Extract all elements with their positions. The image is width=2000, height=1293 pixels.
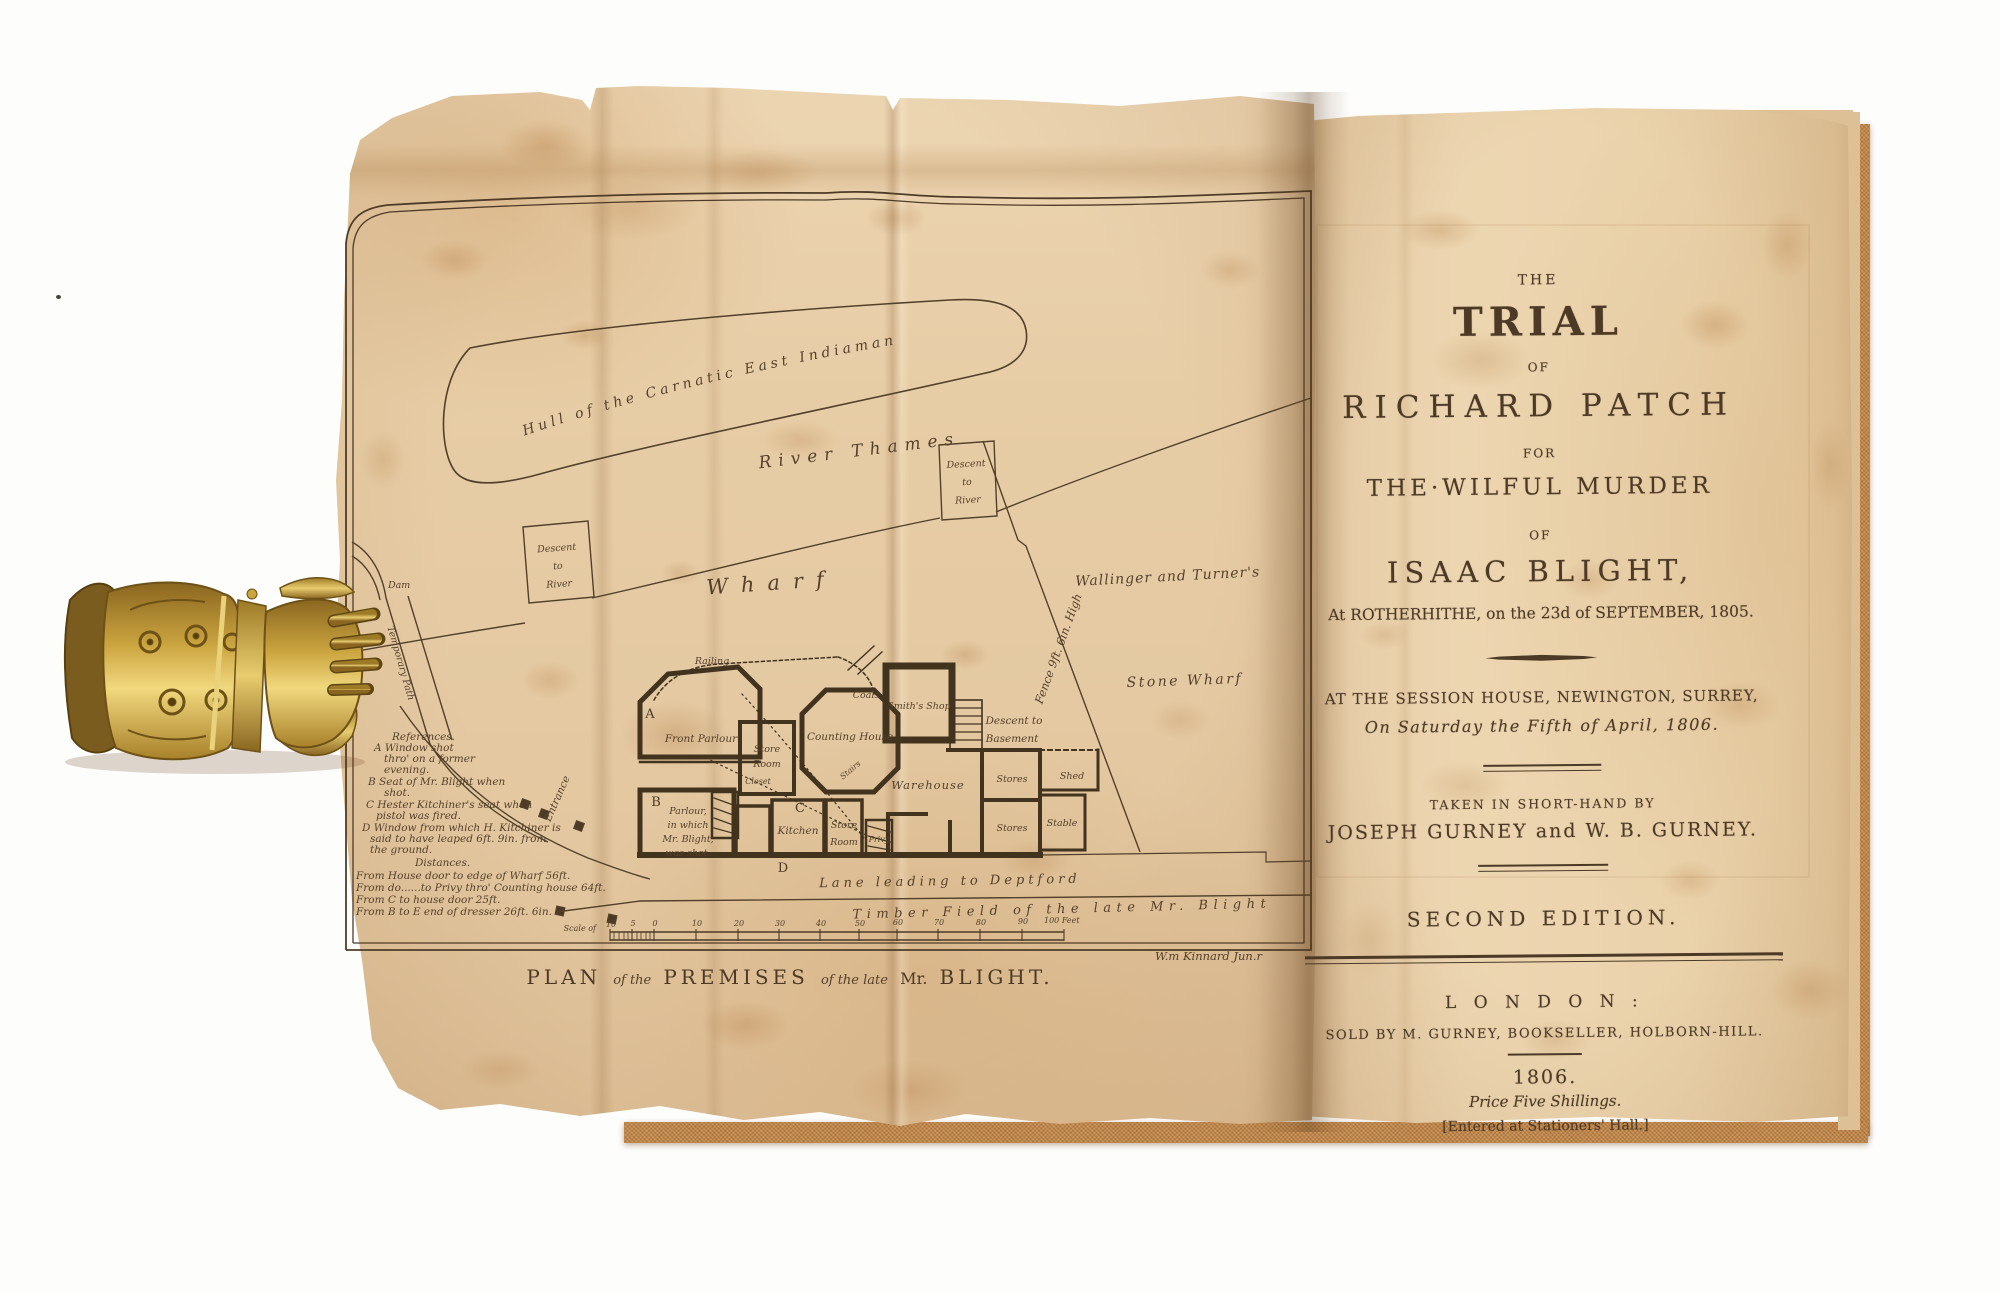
scale-bar bbox=[610, 929, 1064, 941]
wallinger-label: Wallinger and Turner's bbox=[1075, 564, 1261, 590]
plan-legend: References. A Window shot thro' on a for… bbox=[355, 731, 606, 918]
caption-part: Mr. bbox=[900, 969, 927, 988]
title-the: THE bbox=[1293, 270, 1783, 290]
title-publisher: SOLD BY M. GURNEY, BOOKSELLER, HOLBORN-H… bbox=[1300, 1024, 1790, 1043]
legend-line: Distances. bbox=[414, 857, 470, 869]
scale-number: 80 bbox=[976, 918, 986, 927]
counting-house-label: Counting House bbox=[807, 731, 893, 743]
scale-labels: Scale of 10 5 0 10 20 30 40 50 60 70 80 … bbox=[564, 916, 1081, 933]
coals-label: Coals bbox=[853, 690, 880, 701]
scale-number: 20 bbox=[733, 919, 744, 928]
river-label: River Thames bbox=[757, 429, 962, 474]
title-trial-date: On Saturday the Fifth of April, 1806. bbox=[1297, 714, 1787, 737]
store-room-lower-2: Room bbox=[829, 837, 858, 848]
front-parlour-label: Front Parlour bbox=[664, 733, 738, 745]
shed-label: Shed bbox=[1060, 771, 1084, 782]
hull-label-text: Hull of the Carnatic East Indiaman bbox=[520, 332, 899, 439]
marker-d: D bbox=[778, 861, 788, 876]
smiths-shop-label: Smith's Shop bbox=[887, 701, 950, 712]
title-defendant: RICHARD PATCH bbox=[1294, 386, 1784, 426]
stores-upper-label: Stores bbox=[996, 774, 1027, 785]
descent-basement-2: Basement bbox=[985, 733, 1040, 745]
marker-b: B bbox=[651, 795, 661, 810]
title-of-1: OF bbox=[1294, 358, 1784, 376]
legend-line: pistol was fired. bbox=[376, 810, 461, 822]
scale-number: 30 bbox=[775, 919, 785, 928]
brass-hand-clasp[interactable] bbox=[65, 578, 379, 774]
parlour-shot-1: Parlour, bbox=[668, 806, 707, 817]
book-photograph: Hull of the Carnatic East Indiaman River… bbox=[0, 0, 2000, 1293]
descent2-line1: Descent bbox=[945, 458, 986, 471]
title-page-text: THE TRIAL OF RICHARD PATCH FOR THE·WILFU… bbox=[1292, 102, 1861, 1133]
descent1-line3: River bbox=[545, 578, 574, 591]
stairs-label: Stairs bbox=[838, 759, 862, 781]
entrance-label: Entrance bbox=[541, 774, 572, 824]
descent2-line3: River bbox=[954, 494, 983, 506]
store-room-upper-1: Store bbox=[754, 744, 781, 755]
legend-line: From House door to edge of Wharf 56ft. bbox=[355, 870, 570, 882]
privy-label: Privy bbox=[868, 835, 890, 844]
marker-c: C bbox=[795, 801, 805, 816]
double-rule-1 bbox=[1297, 762, 1787, 773]
hull-label: Hull of the Carnatic East Indiaman bbox=[520, 332, 899, 439]
scale-number: 50 bbox=[855, 919, 865, 928]
title-for: FOR bbox=[1295, 444, 1785, 462]
title-year: 1806. bbox=[1300, 1064, 1790, 1090]
kitchen-label: Kitchen bbox=[776, 825, 818, 837]
clasp-wristband bbox=[232, 600, 266, 752]
scale-number: 10 bbox=[606, 920, 616, 929]
caption-part: BLIGHT. bbox=[940, 965, 1054, 989]
legend-line: From do......to Privy thro' Counting hou… bbox=[355, 882, 606, 894]
title-of-2: OF bbox=[1295, 526, 1785, 544]
scale-number: 90 bbox=[1018, 917, 1028, 926]
scale-number: 10 bbox=[692, 919, 702, 928]
caption-part: PLAN bbox=[526, 965, 601, 989]
legend-line: From B to E end of dresser 26ft. 6in. bbox=[355, 906, 552, 918]
descent1-line1: Descent bbox=[536, 542, 577, 556]
legend-line: the ground. bbox=[370, 844, 432, 856]
descent2-line2: to bbox=[962, 477, 972, 488]
plan-caption: PLAN of the PREMISES of the late Mr. BLI… bbox=[526, 965, 1053, 989]
title-price: Price Five Shillings. bbox=[1300, 1090, 1790, 1112]
parlour-shot-3: Mr. Blight, bbox=[661, 834, 713, 845]
store-room-lower-1: Store bbox=[831, 820, 858, 831]
title-edition: SECOND EDITION. bbox=[1299, 904, 1789, 932]
short-rule bbox=[1300, 1051, 1790, 1057]
caption-part: of the late bbox=[821, 973, 888, 988]
parlour-shot-4: was shot. bbox=[665, 848, 710, 859]
descent1-line2: to bbox=[553, 561, 564, 573]
dam-label: Dam bbox=[387, 580, 410, 591]
legend-line: From C to house door 25ft. bbox=[355, 894, 500, 906]
stone-wharf-label: Stone Wharf bbox=[1126, 671, 1243, 691]
title-shorthand-note: TAKEN IN SHORT-HAND BY bbox=[1298, 794, 1788, 813]
title-charge: THE·WILFUL MURDER bbox=[1295, 472, 1785, 502]
closet-upper-label: Closet bbox=[745, 777, 771, 786]
stores-lower-label: Stores bbox=[996, 823, 1027, 834]
title-trial: TRIAL bbox=[1293, 296, 1783, 347]
caption-part: of the bbox=[613, 973, 651, 988]
ornament-rule bbox=[1296, 652, 1786, 663]
lane-label: Lane leading to Deptford bbox=[818, 872, 1081, 892]
parlour-shot-2: in which bbox=[668, 820, 709, 831]
warehouse-label: Warehouse bbox=[891, 778, 964, 792]
legend-line: shot. bbox=[384, 787, 410, 799]
title-court: AT THE SESSION HOUSE, NEWINGTON, SURREY, bbox=[1297, 686, 1787, 708]
legend-line: evening. bbox=[384, 764, 429, 776]
engraver-signature: W.m Kinnard Jun.r bbox=[1155, 949, 1264, 963]
title-city: L O N D O N : bbox=[1299, 990, 1789, 1014]
railing-label: Railing bbox=[694, 656, 729, 667]
temporary-path-label: Temporary Path bbox=[385, 625, 417, 702]
clasp-leaf-top bbox=[280, 578, 354, 599]
title-reporters: JOSEPH GURNEY and W. B. GURNEY. bbox=[1298, 818, 1788, 844]
marker-a: A bbox=[644, 707, 655, 722]
title-location-date: At ROTHERHITHE, on the 23d of SEPTEMBER,… bbox=[1296, 602, 1786, 624]
descent-to-river-2: Descent to River bbox=[945, 458, 988, 507]
descent-to-river-1: Descent to River bbox=[536, 542, 579, 592]
fence-label: Fence 9ft. 6in. High bbox=[1031, 592, 1084, 707]
wharf-label: Wharf bbox=[706, 566, 838, 599]
title-victim: ISAAC BLIGHT, bbox=[1295, 552, 1785, 590]
scale-caption: Scale of bbox=[564, 924, 598, 933]
store-room-upper-2: Room bbox=[752, 759, 781, 770]
scale-end-label: 100 Feet bbox=[1044, 916, 1080, 925]
scale-number: 5 bbox=[630, 919, 635, 928]
scale-number: 0 bbox=[652, 919, 657, 928]
stable-label: Stable bbox=[1047, 818, 1078, 829]
scale-number: 70 bbox=[934, 918, 944, 927]
long-double-rule bbox=[1299, 952, 1789, 964]
descent-basement-1: Descent to bbox=[985, 715, 1043, 727]
building-walls bbox=[640, 646, 1098, 855]
double-rule-2 bbox=[1298, 862, 1788, 873]
caption-part: PREMISES bbox=[663, 965, 809, 989]
scale-number: 40 bbox=[815, 919, 826, 928]
scale-number: 60 bbox=[893, 918, 903, 927]
clasp-pin bbox=[247, 589, 257, 599]
